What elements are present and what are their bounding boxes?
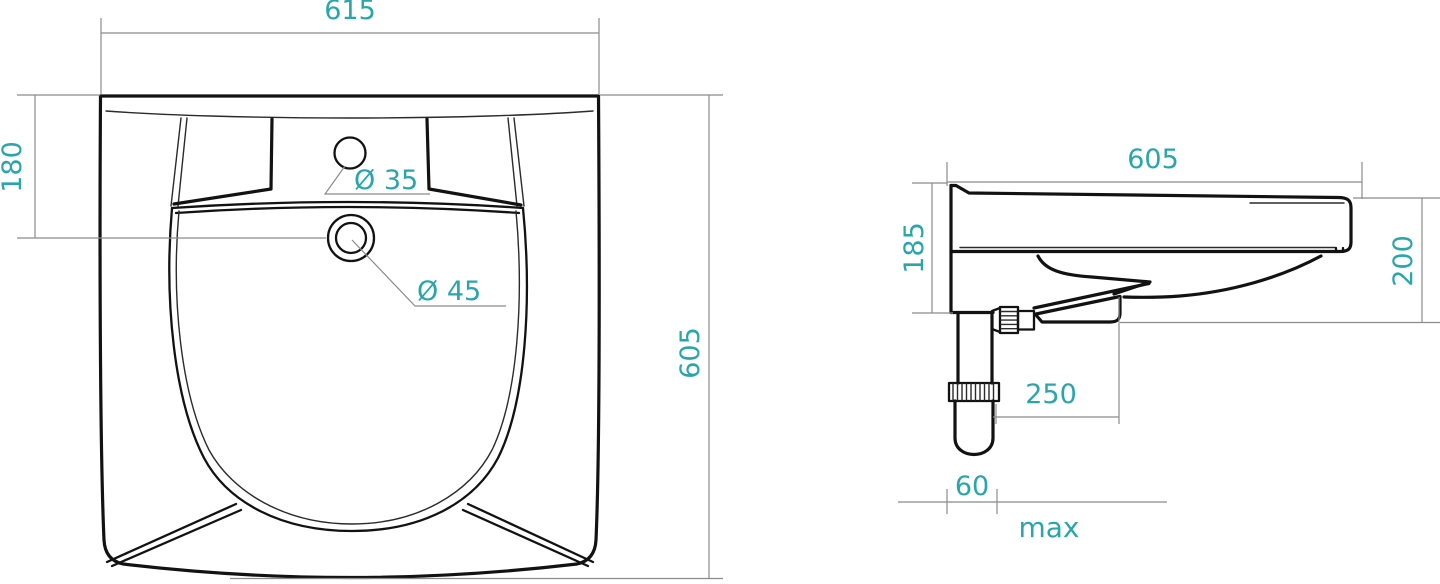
top-view: 615 180 605 Ø 35 Ø 45 xyxy=(0,0,723,579)
coupling-nut xyxy=(1018,311,1034,330)
dim-depth-label: 605 xyxy=(675,327,706,379)
dimension-width: 615 xyxy=(101,0,599,94)
drain-hole-inner xyxy=(336,223,366,253)
dim-pipe-width-label: 60 xyxy=(955,471,989,502)
washbasin-dimension-drawing: 615 180 605 Ø 35 Ø 45 xyxy=(0,0,1440,584)
leader-drain-hole: Ø 45 xyxy=(352,240,506,307)
dimension-front-height: 200 xyxy=(1120,198,1440,323)
leader-faucet-hole: Ø 35 xyxy=(325,165,430,196)
bowl-outline-outer xyxy=(169,208,527,531)
dim-width-label: 615 xyxy=(324,0,376,26)
dim-trap-offset-label: 250 xyxy=(1025,379,1077,410)
dimension-back-height: 185 xyxy=(899,183,953,313)
side-view: 605 185 200 250 60 max xyxy=(898,144,1440,544)
trap-collar xyxy=(949,383,999,401)
dim-drain-hole-label: Ø 45 xyxy=(417,276,481,307)
dim-hole-offset-label: 180 xyxy=(0,141,28,193)
deck-bowl-separation xyxy=(172,202,523,213)
dim-qualifier-label: max xyxy=(1018,511,1079,544)
dimension-pipe-width: 60 max xyxy=(898,471,1167,544)
dim-back-height-label: 185 xyxy=(899,222,930,274)
threaded-connector xyxy=(992,307,1034,333)
technical-drawing-page: 615 180 605 Ø 35 Ø 45 xyxy=(0,0,1440,584)
dimension-side-depth: 605 xyxy=(947,144,1362,199)
dimension-hole-offset: 180 xyxy=(0,95,326,238)
faucet-hole xyxy=(335,138,366,169)
dim-faucet-hole-label: Ø 35 xyxy=(354,165,418,196)
faucet-platform xyxy=(174,119,521,205)
dim-front-height-label: 200 xyxy=(1388,235,1419,287)
right-wing-edge xyxy=(508,118,524,206)
profile-body xyxy=(951,186,1351,252)
left-wing-edge xyxy=(171,118,187,206)
basin-inner-back-line xyxy=(106,111,593,118)
bowl-outline-inner xyxy=(176,211,519,524)
bottom-right-diagonal xyxy=(463,504,593,566)
trap-pipe xyxy=(949,313,999,455)
dim-side-depth-label: 605 xyxy=(1127,144,1179,175)
bowl-underside-curve xyxy=(1124,256,1321,297)
dimension-depth: 605 xyxy=(230,95,723,579)
bottom-left-diagonal xyxy=(107,504,241,566)
